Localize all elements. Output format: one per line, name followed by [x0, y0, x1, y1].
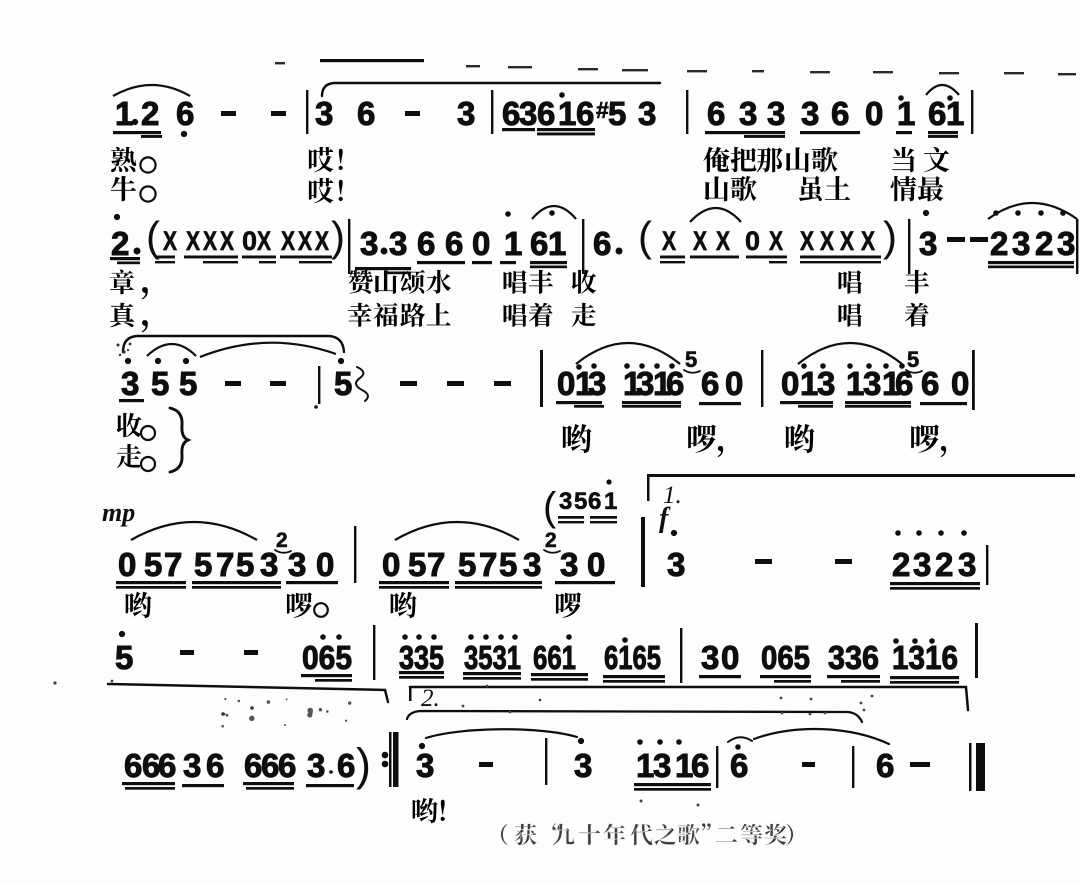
svg-text:X: X [281, 226, 295, 256]
svg-text:3: 3 [389, 225, 407, 262]
svg-text:1: 1 [558, 95, 576, 132]
svg-text:X: X [163, 226, 177, 256]
svg-text:2: 2 [276, 529, 288, 552]
svg-text:3: 3 [653, 747, 671, 784]
svg-text:057: 057 [382, 546, 445, 583]
svg-text:5753: 5753 [458, 546, 541, 583]
svg-text:X: X [662, 226, 676, 256]
svg-text:3: 3 [919, 225, 937, 262]
svg-text:X: X [861, 226, 875, 256]
svg-text:057: 057 [118, 546, 182, 583]
svg-text:2: 2 [111, 225, 129, 262]
svg-text:5: 5 [685, 347, 697, 372]
svg-text:666: 666 [244, 747, 296, 784]
svg-text:X: X [693, 226, 707, 256]
svg-text:6: 6 [691, 747, 709, 784]
svg-text:(: ( [543, 485, 557, 529]
svg-text:1316: 1316 [892, 639, 958, 676]
svg-text:1: 1 [504, 225, 522, 262]
svg-text:mp: mp [102, 498, 135, 527]
svg-text:1: 1 [846, 365, 864, 402]
svg-text:6: 6 [593, 225, 611, 262]
svg-text:X: X [203, 226, 217, 256]
svg-text:): ) [356, 739, 371, 790]
svg-text:3: 3 [457, 95, 475, 132]
svg-text:6: 6 [576, 95, 594, 132]
svg-text:065: 065 [302, 639, 352, 676]
svg-text:X: X [800, 226, 814, 256]
svg-text:335: 335 [399, 639, 444, 676]
svg-text:355: 355 [121, 365, 197, 402]
svg-text:3531: 3531 [464, 639, 521, 676]
svg-text:3: 3 [863, 365, 881, 402]
svg-text:30: 30 [701, 639, 739, 676]
svg-text:X: X [769, 226, 783, 256]
svg-text:3: 3 [636, 365, 654, 402]
svg-text:X: X [716, 226, 730, 256]
svg-text:3: 3 [817, 365, 835, 402]
svg-text:6165: 6165 [604, 639, 661, 676]
svg-text:X: X [257, 226, 271, 256]
svg-text:065: 065 [761, 639, 810, 676]
svg-text:X: X [186, 226, 200, 256]
svg-text:X: X [298, 226, 312, 256]
svg-text:126: 126 [115, 95, 194, 132]
svg-text:661: 661 [533, 639, 576, 676]
svg-text:6: 6 [666, 365, 684, 402]
svg-text:6: 6 [876, 747, 894, 784]
svg-text:0: 0 [745, 226, 760, 256]
svg-text:3561: 3561 [559, 488, 617, 515]
svg-text:5: 5 [115, 639, 133, 676]
svg-text:0: 0 [557, 365, 575, 402]
svg-text:3: 3 [416, 747, 434, 784]
svg-text:1: 1 [800, 365, 818, 402]
svg-text:X: X [840, 226, 854, 256]
svg-text:2: 2 [545, 529, 557, 552]
svg-text:5753: 5753 [194, 546, 278, 583]
svg-text:0: 0 [242, 226, 257, 256]
svg-text:3: 3 [574, 747, 592, 784]
svg-text:): ) [331, 213, 345, 260]
svg-text:666: 666 [124, 747, 176, 784]
svg-text:): ) [883, 213, 897, 260]
svg-text:X: X [820, 226, 834, 256]
svg-text:61: 61 [928, 95, 964, 132]
svg-text:336: 336 [828, 639, 879, 676]
svg-text:3: 3 [667, 546, 685, 583]
svg-text:2.: 2. [421, 685, 440, 712]
svg-text:1: 1 [897, 95, 915, 132]
svg-text:0: 0 [781, 365, 799, 402]
svg-text:X: X [220, 226, 234, 256]
svg-text:3: 3 [360, 225, 378, 262]
svg-text:X: X [315, 226, 329, 256]
svg-text:1: 1 [636, 747, 654, 784]
svg-text:636: 636 [502, 95, 555, 132]
svg-text:(: ( [638, 213, 652, 260]
svg-text:6: 6 [730, 747, 748, 784]
svg-text:2323: 2323 [892, 546, 976, 583]
svg-text:3: 3 [588, 365, 606, 402]
svg-text:5: 5 [907, 347, 919, 372]
svg-text:(: ( [146, 213, 160, 260]
svg-text:61: 61 [530, 225, 566, 262]
svg-text:5: 5 [334, 365, 352, 402]
